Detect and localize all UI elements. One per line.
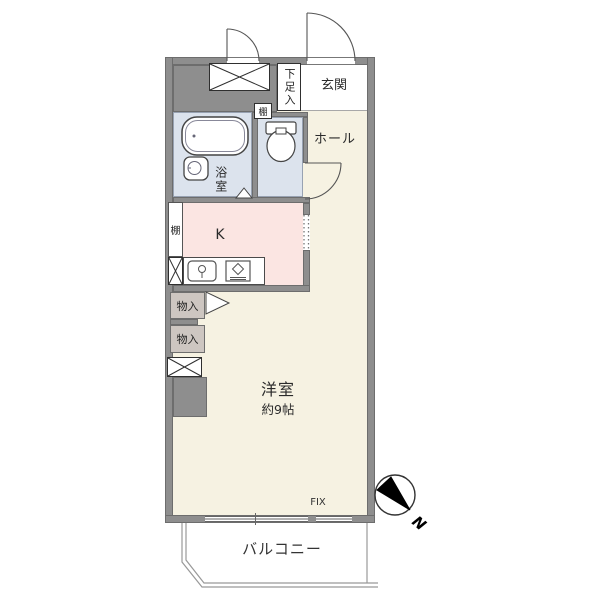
wall-left-block	[173, 377, 207, 417]
closet-upper: 物入	[170, 292, 205, 319]
kitchen-counter	[183, 257, 265, 285]
closet-upper-label: 物入	[177, 298, 199, 314]
wall-kitchen-bottom	[173, 285, 310, 292]
living-room-label: 洋室	[238, 381, 318, 399]
closet-lower: 物入	[170, 325, 205, 353]
living-room-size-label: 約9帖	[238, 403, 318, 417]
hall-label: ホール	[308, 133, 362, 148]
genkan-label: 玄関	[303, 79, 365, 94]
genkan-step-line	[301, 110, 367, 111]
entrance-door-swing-icon	[307, 13, 355, 61]
fix-window	[316, 516, 352, 522]
shelf-upper-box: 棚	[254, 103, 272, 119]
shoe-cabinet: 下足入	[277, 63, 301, 111]
toilet-floor	[257, 117, 303, 197]
pipe-space-mid	[168, 257, 183, 285]
wall-left	[165, 57, 173, 523]
shoe-cabinet-label: 下足入	[281, 68, 297, 107]
fix-window-label: FIX	[303, 497, 333, 509]
compass-icon: N	[375, 475, 430, 534]
kitchen-label: K	[210, 227, 230, 243]
sliding-window	[205, 516, 308, 522]
compass-north-label: N	[408, 512, 430, 534]
wall-below-wet-area	[173, 197, 310, 203]
meter-box	[209, 63, 270, 91]
wall-kitchen-right-upper	[303, 203, 310, 215]
pipe-space-lower	[167, 357, 202, 377]
entrance-door-opening	[307, 57, 355, 65]
wall-bath-toilet	[252, 112, 258, 198]
closet-lower-label: 物入	[177, 331, 199, 347]
balcony-label: バルコニー	[227, 541, 337, 558]
bathroom-label: 浴室	[213, 160, 227, 200]
shelf-upper-label: 棚	[258, 105, 267, 118]
wall-right	[367, 57, 375, 523]
floorplan-canvas: 下足入 棚 棚 物入 物入	[0, 0, 600, 600]
shelf-kitchen-box: 棚	[168, 202, 183, 257]
shelf-kitchen-label: 棚	[171, 222, 181, 237]
